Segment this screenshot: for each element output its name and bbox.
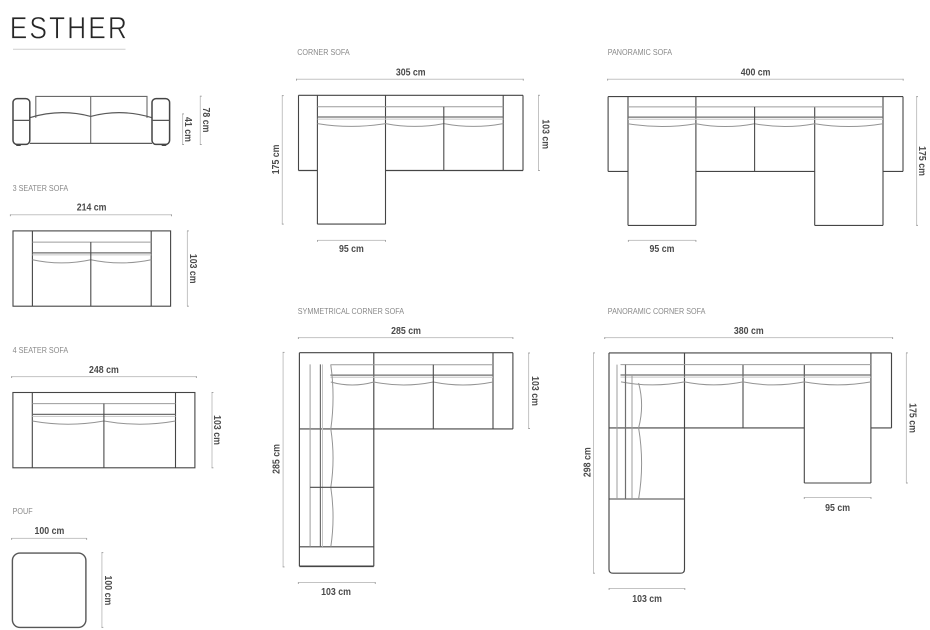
svg-text:175 cm: 175 cm — [270, 145, 282, 175]
svg-text:PANORAMIC CORNER SOFA: PANORAMIC CORNER SOFA — [608, 307, 706, 317]
svg-text:95 cm: 95 cm — [339, 243, 364, 255]
svg-text:175 cm: 175 cm — [916, 146, 928, 176]
svg-text:285 cm: 285 cm — [391, 325, 421, 337]
svg-text:103 cm: 103 cm — [187, 254, 199, 284]
svg-text:78 cm: 78 cm — [200, 108, 212, 133]
svg-text:103 cm: 103 cm — [632, 593, 662, 605]
svg-text:248 cm: 248 cm — [89, 365, 119, 377]
svg-text:POUF: POUF — [13, 507, 33, 517]
svg-text:380 cm: 380 cm — [734, 325, 764, 337]
svg-text:175 cm: 175 cm — [906, 403, 918, 433]
svg-text:400 cm: 400 cm — [741, 67, 771, 79]
svg-text:305 cm: 305 cm — [396, 67, 426, 79]
svg-text:103 cm: 103 cm — [539, 119, 551, 149]
svg-text:103 cm: 103 cm — [529, 376, 541, 406]
svg-text:CORNER SOFA: CORNER SOFA — [297, 48, 350, 58]
svg-text:4 SEATER SOFA: 4 SEATER SOFA — [13, 345, 69, 355]
svg-text:3 SEATER SOFA: 3 SEATER SOFA — [13, 183, 69, 193]
svg-text:PANORAMIC SOFA: PANORAMIC SOFA — [608, 48, 673, 58]
svg-text:95 cm: 95 cm — [825, 502, 850, 514]
svg-text:100 cm: 100 cm — [102, 576, 114, 606]
svg-text:100 cm: 100 cm — [35, 525, 65, 537]
svg-text:214 cm: 214 cm — [77, 202, 107, 214]
svg-text:95 cm: 95 cm — [650, 243, 675, 255]
svg-text:41 cm: 41 cm — [182, 117, 194, 142]
svg-text:SYMMETRICAL CORNER SOFA: SYMMETRICAL CORNER SOFA — [298, 307, 405, 317]
svg-text:103 cm: 103 cm — [321, 587, 351, 599]
svg-text:ESTHER: ESTHER — [10, 12, 129, 47]
svg-text:285 cm: 285 cm — [271, 444, 283, 474]
svg-text:298 cm: 298 cm — [582, 447, 594, 477]
svg-text:103 cm: 103 cm — [211, 415, 223, 445]
